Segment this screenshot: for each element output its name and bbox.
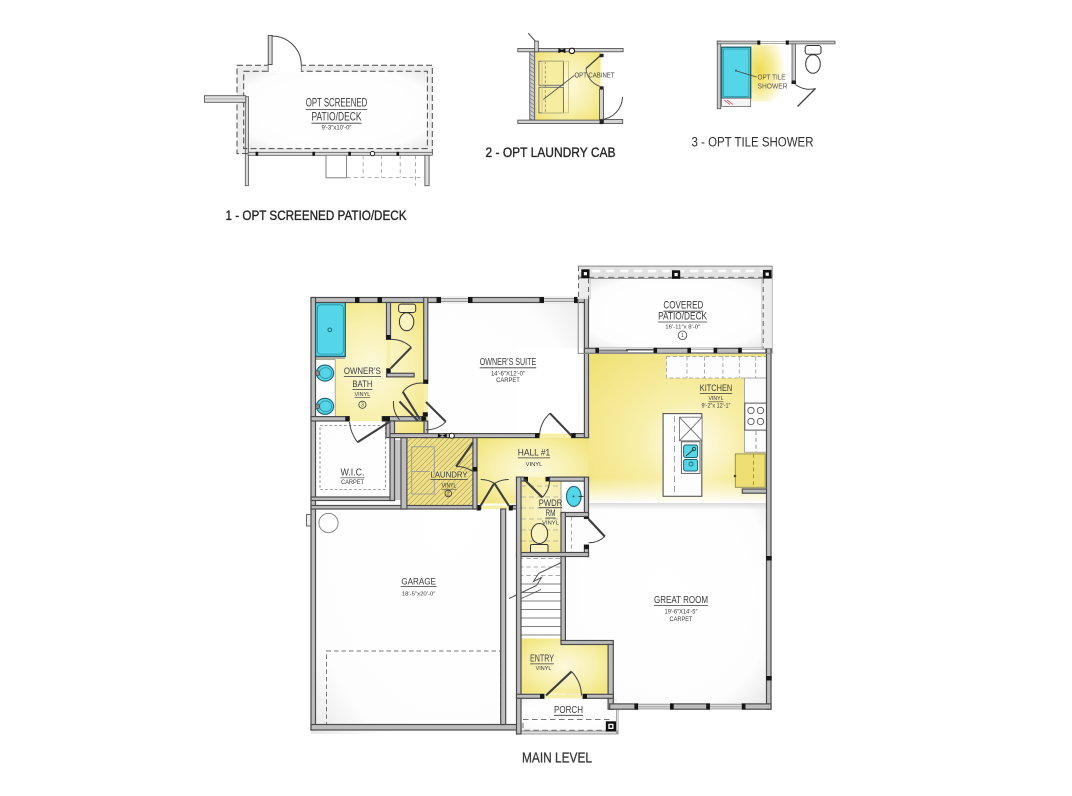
svg-text:CARPET: CARPET xyxy=(496,378,520,384)
svg-text:19′-6″X14′-5″: 19′-6″X14′-5″ xyxy=(665,610,699,616)
svg-text:LAUNDRY: LAUNDRY xyxy=(430,469,468,479)
svg-text:CARPET: CARPET xyxy=(341,479,364,486)
svg-text:14′-6″X12′-0″: 14′-6″X12′-0″ xyxy=(491,371,526,377)
svg-text:HALL #1: HALL #1 xyxy=(518,447,550,458)
svg-text:VINYL: VINYL xyxy=(709,396,725,402)
svg-text:1: 1 xyxy=(681,333,684,339)
svg-text:1 - OPT SCREENED PATIO/DECK: 1 - OPT SCREENED PATIO/DECK xyxy=(226,207,408,223)
svg-text:ENTRY: ENTRY xyxy=(530,654,554,665)
svg-text:RM: RM xyxy=(545,508,555,518)
svg-text:W.I.C.: W.I.C. xyxy=(341,467,365,479)
svg-text:BATH: BATH xyxy=(352,379,372,390)
svg-text:OPT TILE: OPT TILE xyxy=(758,72,786,81)
svg-text:OWNER’S: OWNER’S xyxy=(344,366,381,377)
svg-text:MAIN LEVEL: MAIN LEVEL xyxy=(522,751,592,767)
svg-text:VINYL: VINYL xyxy=(542,521,560,527)
svg-text:2: 2 xyxy=(447,491,450,497)
svg-text:PATIO/DECK: PATIO/DECK xyxy=(658,310,707,322)
svg-text:3: 3 xyxy=(361,403,364,409)
svg-text:GREAT ROOM: GREAT ROOM xyxy=(654,594,708,606)
svg-text:VINYL: VINYL xyxy=(526,462,544,468)
svg-text:GARAGE: GARAGE xyxy=(401,576,436,587)
svg-text:9′-3″x10′-0″: 9′-3″x10′-0″ xyxy=(322,125,353,132)
svg-text:9′-2″x 12′-1″: 9′-2″x 12′-1″ xyxy=(702,404,732,410)
svg-text:PATIO/DECK: PATIO/DECK xyxy=(312,109,362,123)
svg-text:OPT SCREENED: OPT SCREENED xyxy=(306,95,368,109)
svg-text:CARPET: CARPET xyxy=(670,616,693,623)
svg-text:PWDR: PWDR xyxy=(539,498,563,508)
svg-text:VINYL: VINYL xyxy=(536,666,553,672)
svg-text:VINYL: VINYL xyxy=(355,392,371,398)
svg-text:18′-5″x20′-0″: 18′-5″x20′-0″ xyxy=(402,591,436,597)
svg-text:SHOWER: SHOWER xyxy=(758,81,788,90)
svg-text:2 - OPT LAUNDRY CAB: 2 - OPT LAUNDRY CAB xyxy=(486,144,616,160)
svg-text:OPT CABINET: OPT CABINET xyxy=(575,71,616,80)
svg-text:16′-11″x 8′-0″: 16′-11″x 8′-0″ xyxy=(665,325,700,331)
svg-text:3 - OPT TILE SHOWER: 3 - OPT TILE SHOWER xyxy=(692,135,814,150)
svg-text:VINYL: VINYL xyxy=(442,484,457,490)
svg-text:PORCH: PORCH xyxy=(554,705,583,716)
svg-text:OWNER’S SUITE: OWNER’S SUITE xyxy=(480,356,537,368)
svg-text:KITCHEN: KITCHEN xyxy=(700,383,733,394)
